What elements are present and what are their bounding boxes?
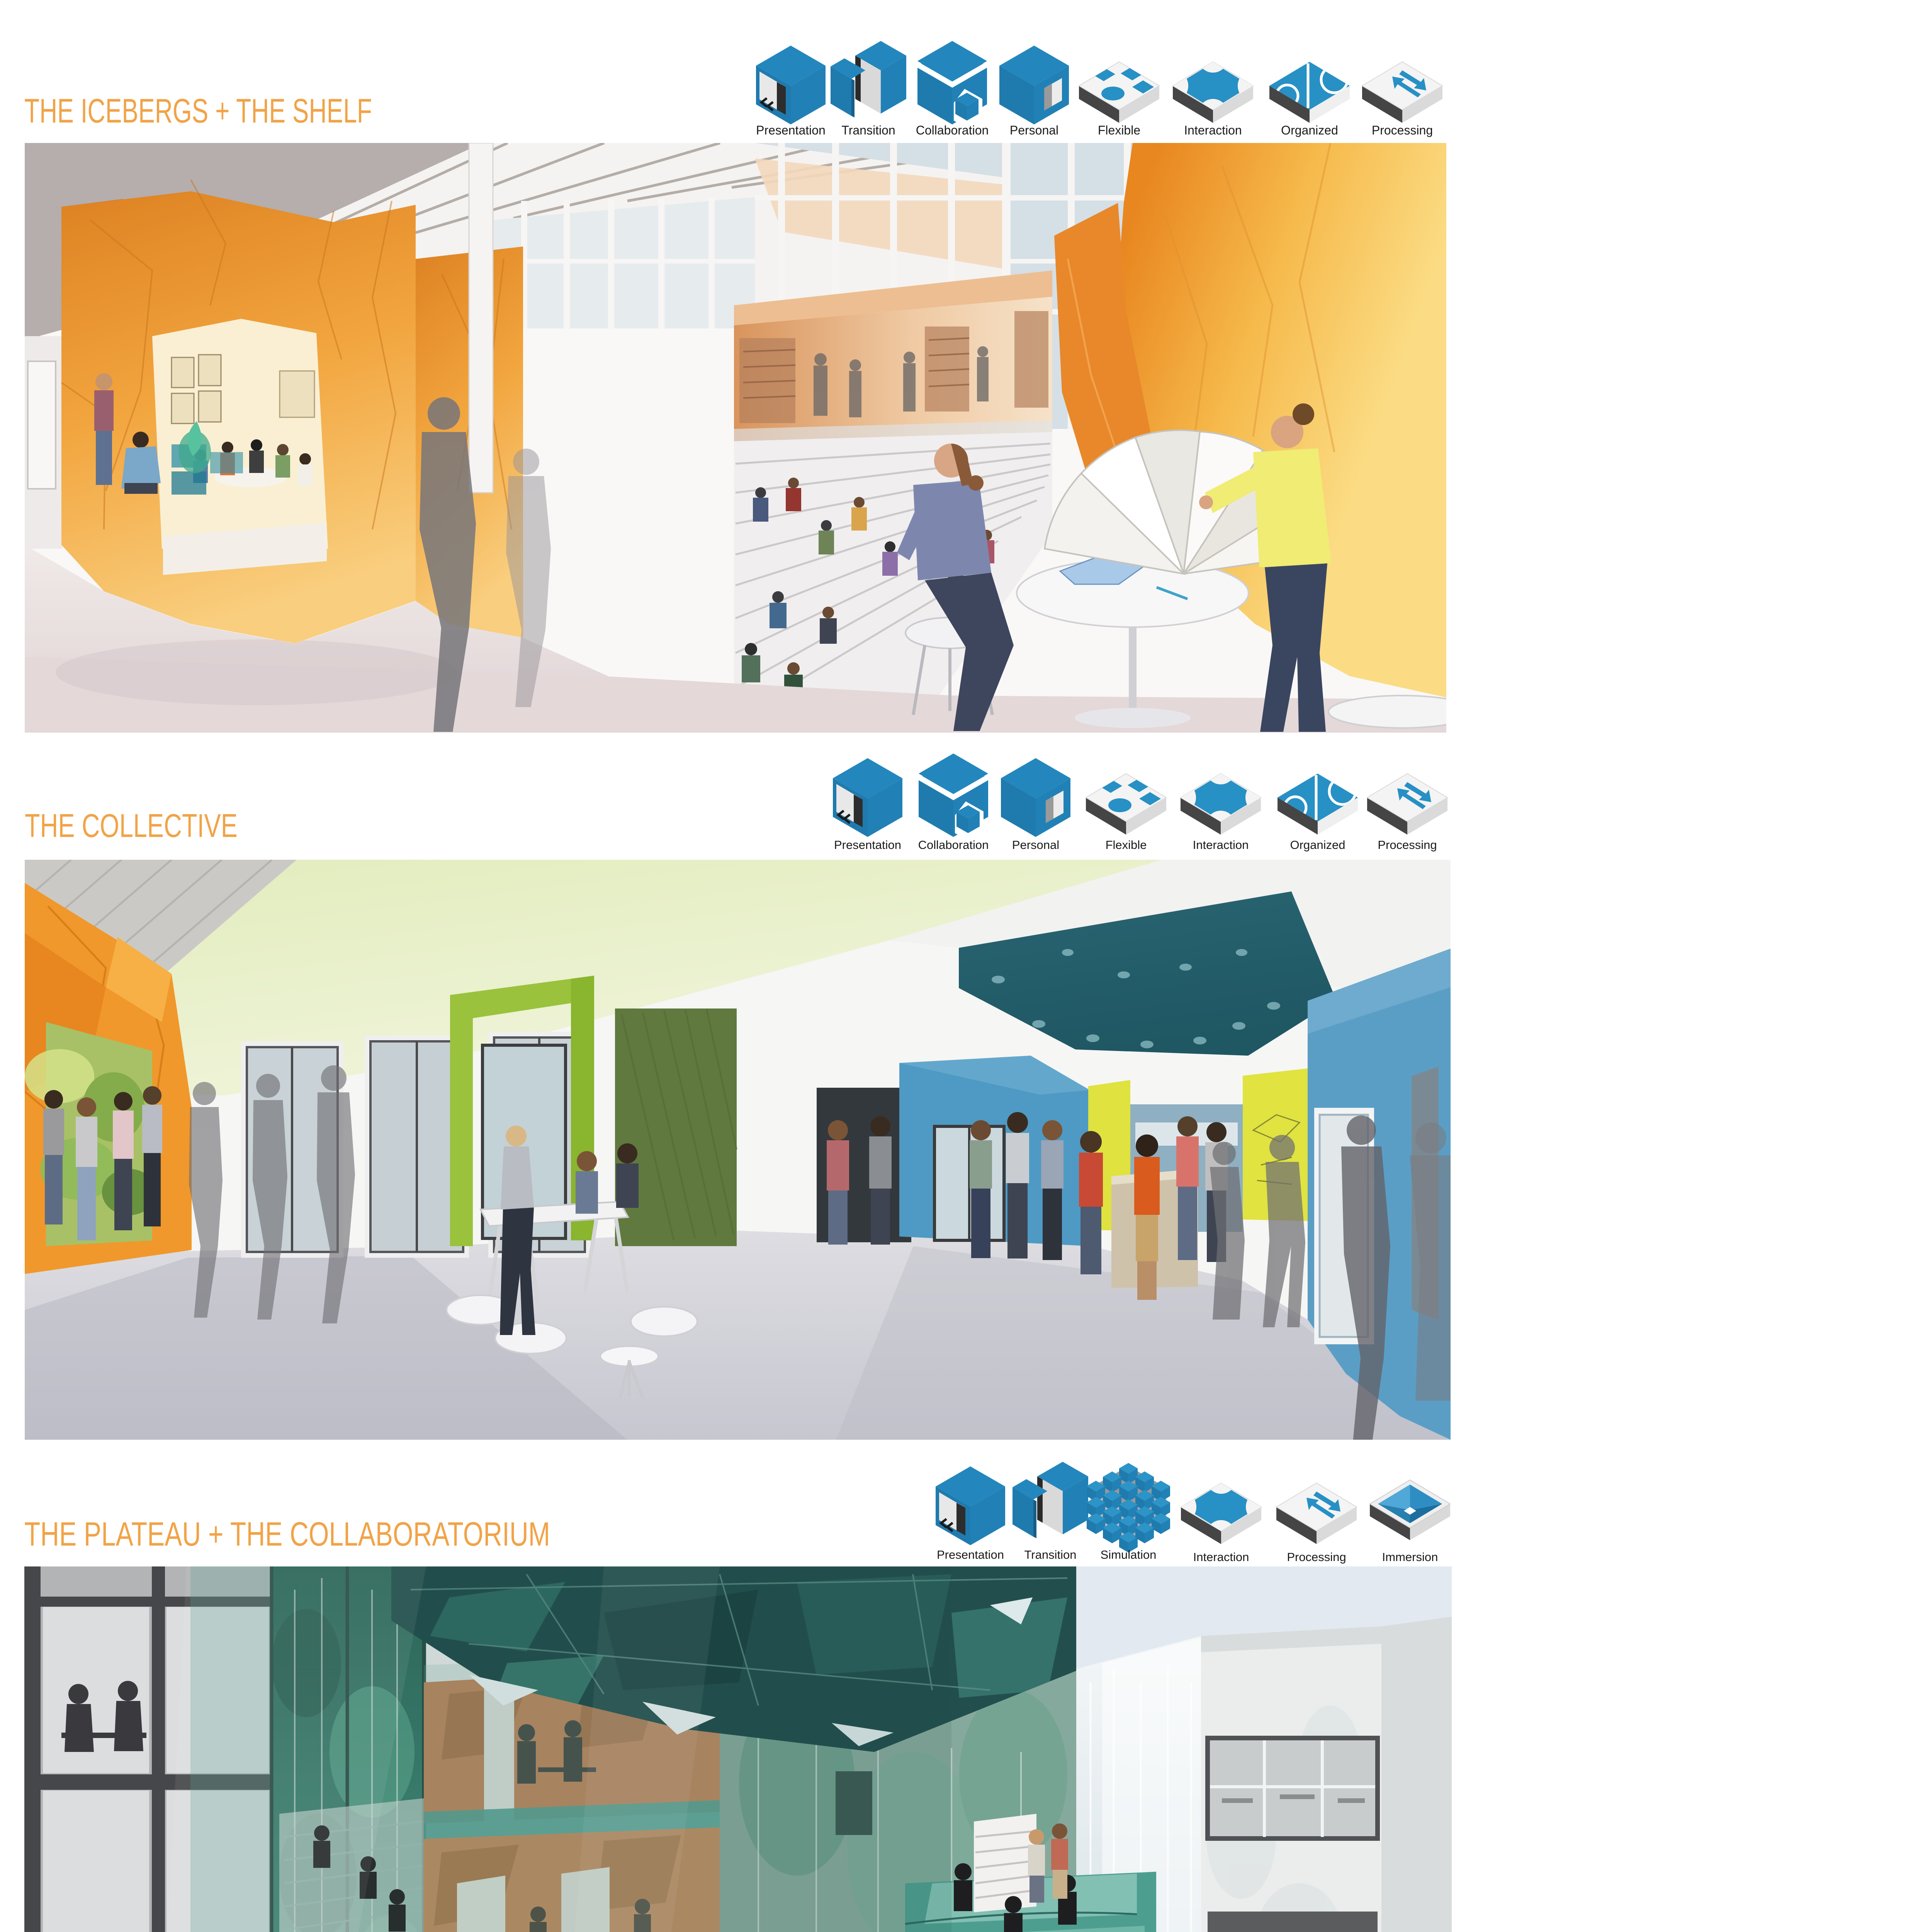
svg-text:Flexible: Flexible [1106, 838, 1147, 852]
svg-text:Organized: Organized [1281, 123, 1338, 137]
svg-text:Collaboration: Collaboration [916, 123, 989, 137]
svg-text:Presentation: Presentation [756, 123, 826, 137]
svg-text:Organized: Organized [1290, 838, 1345, 852]
svg-text:Presentation: Presentation [834, 838, 901, 852]
svg-text:Personal: Personal [1010, 123, 1058, 137]
svg-text:Immersion: Immersion [1382, 1550, 1438, 1564]
svg-text:Processing: Processing [1287, 1550, 1346, 1564]
svg-text:Presentation: Presentation [937, 1548, 1004, 1561]
svg-text:Collaboration: Collaboration [918, 838, 989, 852]
svg-text:Simulation: Simulation [1101, 1548, 1157, 1561]
svg-text:Processing: Processing [1372, 123, 1433, 137]
svg-text:Transition: Transition [1024, 1548, 1077, 1561]
svg-text:Processing: Processing [1378, 838, 1437, 852]
svg-text:Interaction: Interaction [1184, 123, 1242, 137]
svg-text:Personal: Personal [1012, 838, 1059, 852]
svg-text:THE ICEBERGS + THE SHELF: THE ICEBERGS + THE SHELF [24, 92, 372, 130]
svg-text:Interaction: Interaction [1193, 1550, 1249, 1564]
svg-text:THE COLLECTIVE: THE COLLECTIVE [25, 808, 238, 844]
svg-text:Interaction: Interaction [1193, 838, 1249, 852]
svg-text:Flexible: Flexible [1098, 123, 1140, 137]
svg-text:Transition: Transition [841, 123, 895, 137]
svg-text:THE PLATEAU + THE COLLABORATOR: THE PLATEAU + THE COLLABORATORIUM [24, 1515, 550, 1553]
